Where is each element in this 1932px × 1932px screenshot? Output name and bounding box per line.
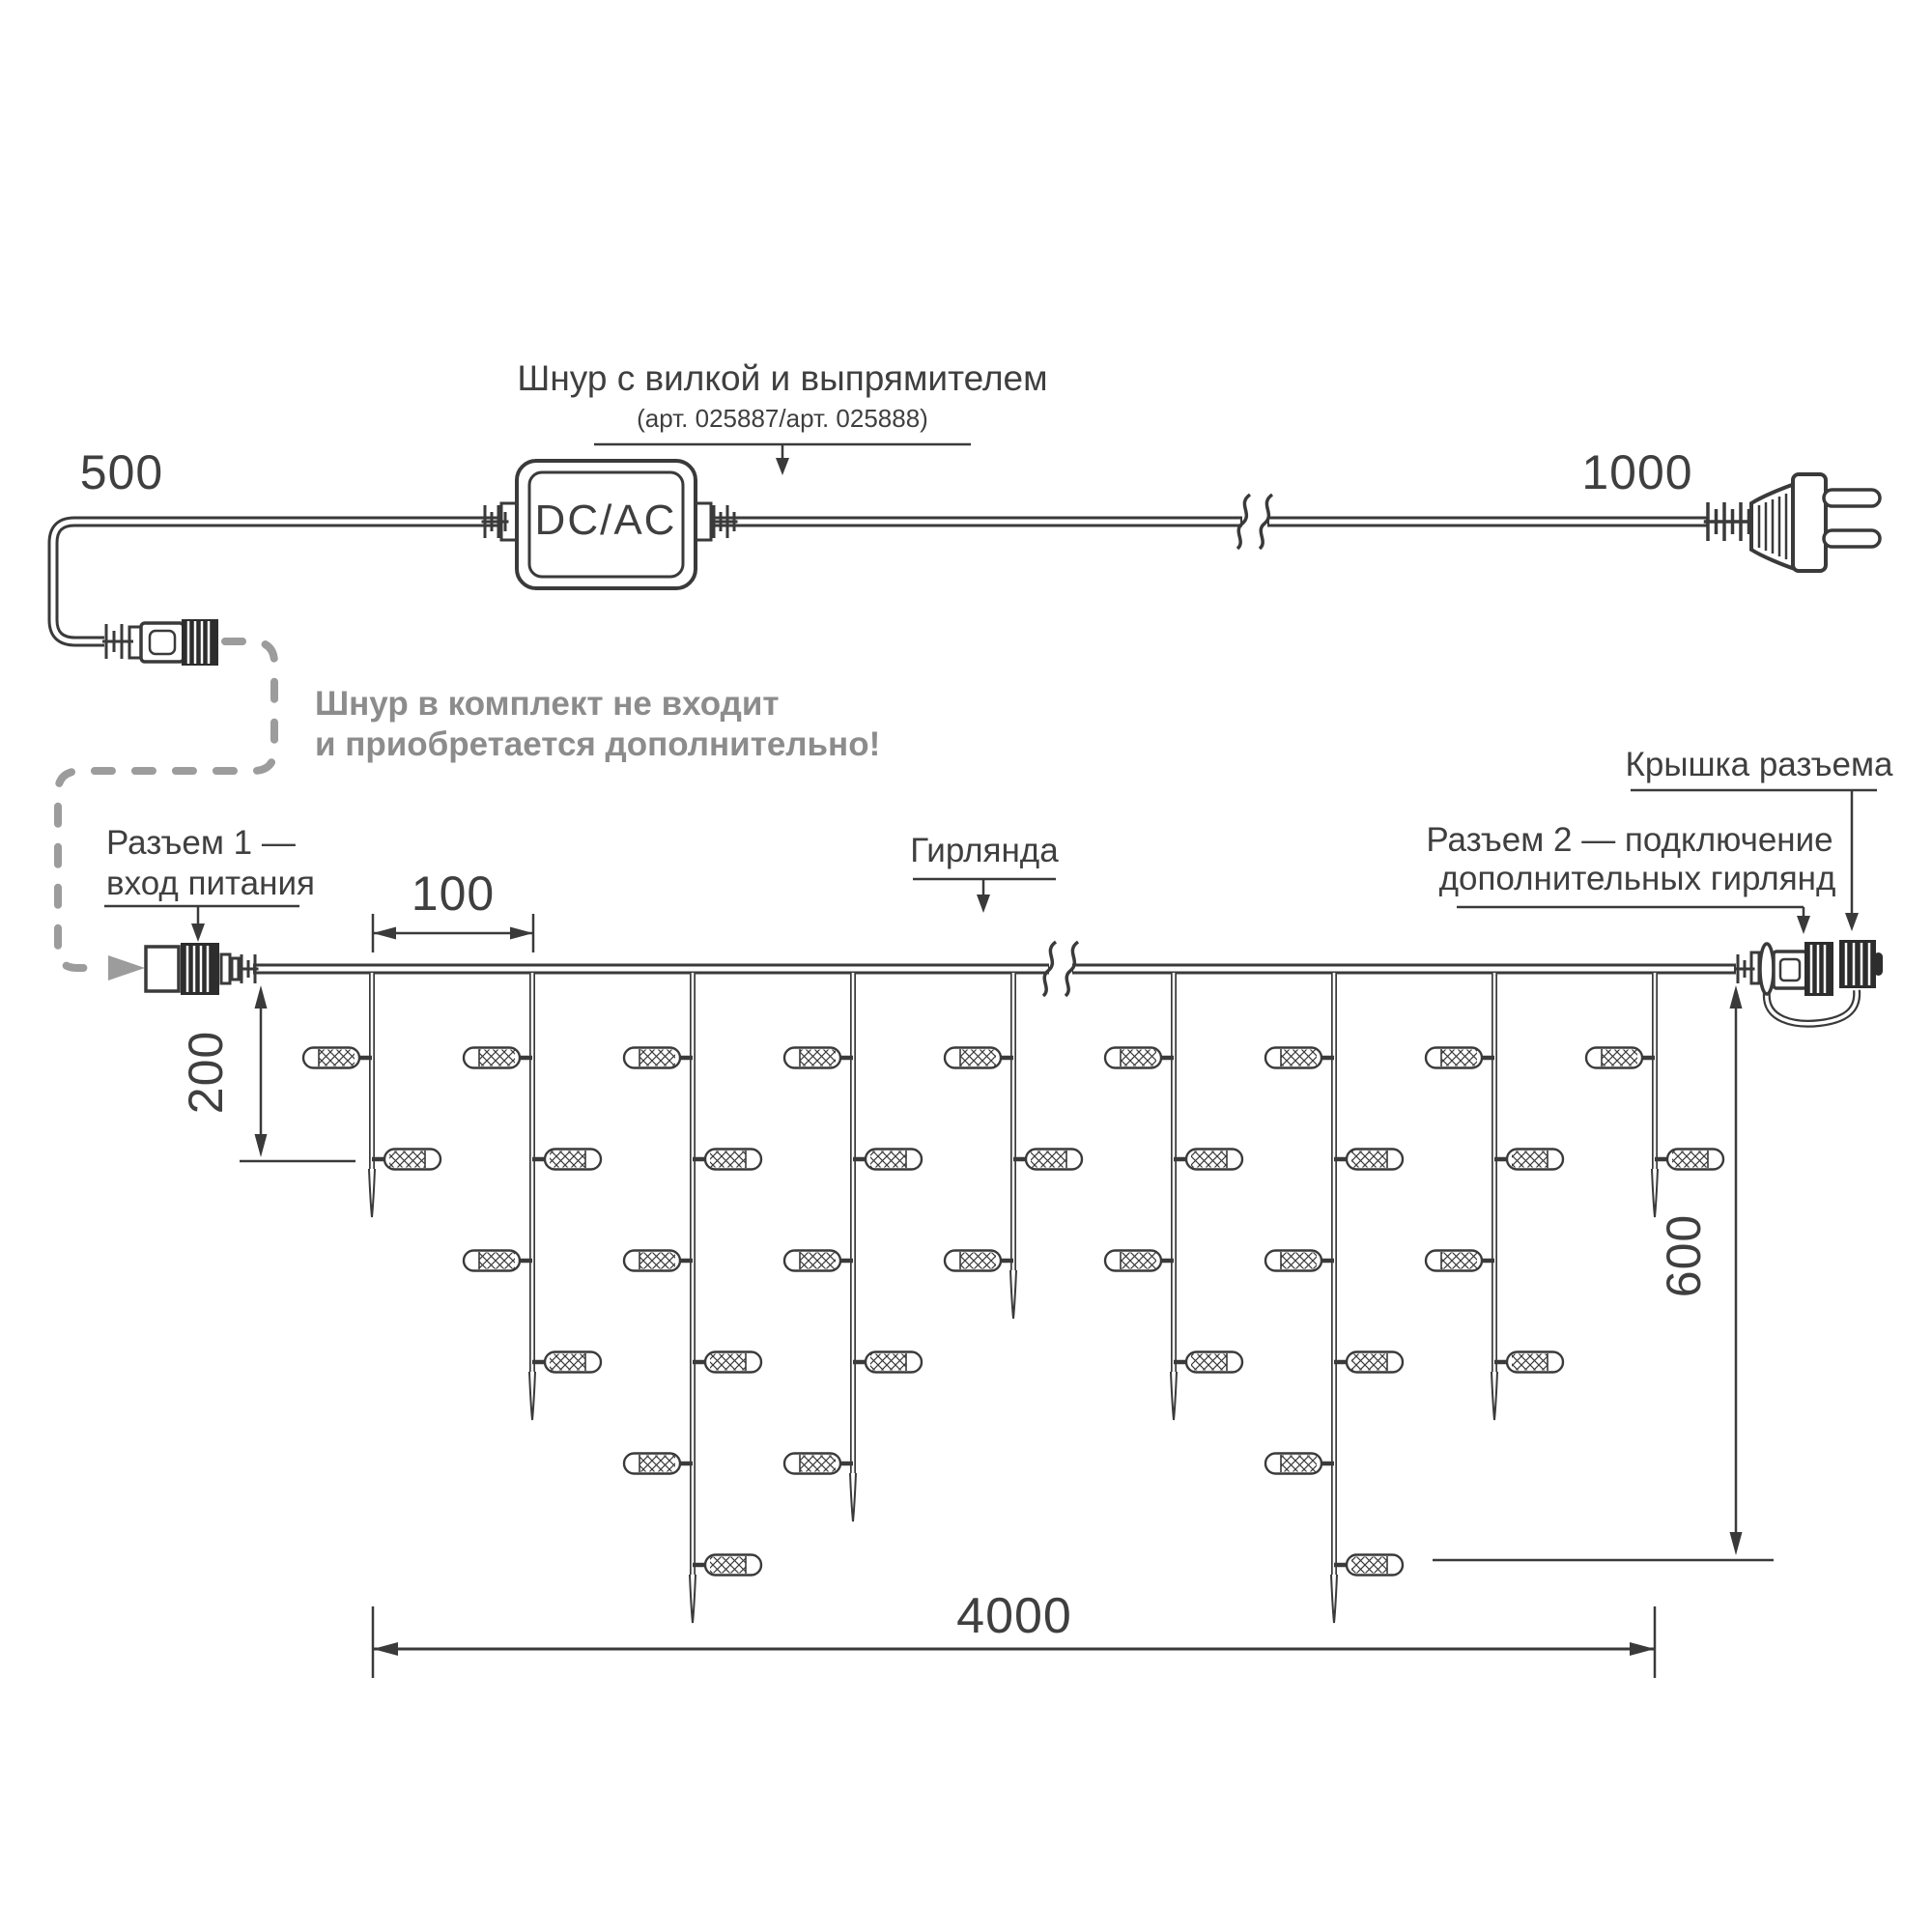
- led-bulb-hatch: [1281, 1050, 1317, 1066]
- drop-tip: [690, 1575, 696, 1623]
- led-bulb-hatch: [710, 1557, 746, 1574]
- led-bulb-hatch: [870, 1354, 906, 1371]
- led-bulb: [1347, 1555, 1403, 1576]
- cord-left-run: [53, 522, 503, 641]
- led-bulb-hatch: [319, 1050, 355, 1066]
- led-bulb: [784, 1048, 840, 1068]
- led-bulb-hatch: [1191, 1354, 1227, 1371]
- dim-4000-arrowhead-right: [1630, 1642, 1655, 1656]
- led-bulb-hatch: [800, 1253, 836, 1269]
- led-bulb-hatch: [1031, 1151, 1066, 1168]
- garland-connector-2: [1751, 940, 1883, 1024]
- led-bulb: [945, 1048, 1001, 1068]
- led-bulb-hatch: [1281, 1456, 1317, 1472]
- led-bulb: [624, 1251, 680, 1271]
- garland-connector2-strain-relief: [1735, 954, 1755, 983]
- cord-title-block: Шнур с вилкой и выпрямителем (арт. 02588…: [517, 358, 1047, 475]
- connector2-body: [1774, 952, 1806, 988]
- led-bulb-hatch: [1121, 1253, 1156, 1269]
- dim-200-label: 200: [179, 1031, 233, 1114]
- led-bulb: [784, 1454, 840, 1474]
- drop-tip: [1652, 1169, 1658, 1217]
- icicle-drop: [945, 973, 1082, 1319]
- icicle-drop: [784, 973, 922, 1521]
- power-plug: [1751, 474, 1880, 571]
- garland-label-block: Гирлянда: [910, 832, 1059, 913]
- led-bulb-hatch: [1441, 1253, 1477, 1269]
- led-bulb: [545, 1352, 601, 1373]
- led-bulb-hatch: [1441, 1050, 1477, 1066]
- led-bulb-hatch: [1351, 1151, 1387, 1168]
- connector1-label-line1: Разъем 1 —: [106, 824, 296, 862]
- connector-nut: [182, 619, 218, 666]
- led-bulb: [1026, 1150, 1082, 1170]
- drop-tip: [1492, 1372, 1497, 1420]
- led-bulb-hatch: [1602, 1050, 1637, 1066]
- connector1-collar-a: [221, 954, 230, 983]
- dim-200-arrowhead-top: [255, 985, 268, 1009]
- adapter-strain-relief-right: [711, 505, 738, 538]
- led-bulb: [1265, 1048, 1321, 1068]
- dashed-arrowhead: [108, 955, 145, 980]
- led-bulb: [1347, 1352, 1403, 1373]
- led-bulb: [1186, 1150, 1242, 1170]
- led-bulb: [1265, 1251, 1321, 1271]
- cap-label: Крышка разъема: [1625, 746, 1893, 783]
- led-bulb: [624, 1048, 680, 1068]
- led-bulb: [784, 1251, 840, 1271]
- dashed-line: [58, 641, 274, 968]
- led-bulb-hatch: [800, 1456, 836, 1472]
- led-bulb: [705, 1150, 761, 1170]
- connector2-seal-ring: [1760, 944, 1774, 994]
- icicle-drop: [1426, 973, 1563, 1420]
- icicle-drop: [1105, 973, 1242, 1420]
- icicle-drop: [1265, 973, 1403, 1623]
- adapter-label: DC/AC: [535, 497, 677, 544]
- garland-wire: [253, 942, 1736, 996]
- cord-title: Шнур с вилкой и выпрямителем: [517, 358, 1047, 398]
- cap-arrowhead: [1845, 913, 1859, 931]
- dim-600-arrowhead-bottom: [1730, 1532, 1743, 1555]
- led-bulb: [1265, 1454, 1321, 1474]
- dim-4000-label: 4000: [956, 1588, 1072, 1644]
- led-bulb-hatch: [1672, 1151, 1708, 1168]
- dim-1000-label: 1000: [1581, 445, 1692, 499]
- power-cord: [53, 495, 1708, 641]
- plug-strain-relief: [1704, 502, 1753, 541]
- cord-title-arrowhead: [776, 458, 789, 475]
- dim-600-arrowhead-top: [1730, 985, 1743, 1009]
- led-bulb-hatch: [639, 1456, 675, 1472]
- note-block: Шнур в комплект не входит и приобретаетс…: [315, 685, 880, 763]
- led-bulb-hatch: [389, 1151, 425, 1168]
- led-bulb: [866, 1352, 922, 1373]
- dimension-200: 200: [179, 985, 355, 1161]
- led-bulb: [464, 1048, 520, 1068]
- drop-tip: [1331, 1575, 1337, 1623]
- led-bulb-hatch: [960, 1050, 996, 1066]
- led-bulb-hatch: [1512, 1354, 1548, 1371]
- connector2-label-block: Разъем 2 — подключение дополнительных ги…: [1426, 821, 1835, 934]
- connector-body: [141, 623, 184, 662]
- led-bulb: [1507, 1150, 1563, 1170]
- dim-600-label: 600: [1657, 1214, 1711, 1297]
- connector2-label-line2: дополнительных гирлянд: [1439, 860, 1836, 897]
- led-bulb-hatch: [870, 1151, 906, 1168]
- led-bulb-hatch: [639, 1253, 675, 1269]
- dim-200-arrowhead-bottom: [255, 1134, 268, 1157]
- connector1-arrowhead: [191, 923, 205, 942]
- cord-subtitle: (арт. 025887/арт. 025888): [637, 404, 928, 433]
- led-bulb-hatch: [550, 1354, 585, 1371]
- led-bulb-hatch: [1351, 1557, 1387, 1574]
- drop-tip: [1010, 1270, 1016, 1319]
- led-bulb: [945, 1251, 1001, 1271]
- led-bulb: [1586, 1048, 1642, 1068]
- dashed-connection-path: [58, 641, 274, 980]
- led-bulb: [1347, 1150, 1403, 1170]
- led-bulb: [464, 1251, 520, 1271]
- drop-tip: [529, 1372, 535, 1420]
- icicle-drop: [1586, 973, 1723, 1217]
- garland-connector-1: [146, 943, 239, 995]
- drop-tip: [369, 1169, 375, 1217]
- dim-4000-arrowhead-left: [373, 1642, 398, 1656]
- connector-cap: [1839, 940, 1876, 988]
- led-bulb-hatch: [1191, 1151, 1227, 1168]
- garland-label: Гирлянда: [910, 832, 1059, 869]
- garland-wiring-diagram: Шнур с вилкой и выпрямителем (арт. 02588…: [0, 0, 1932, 1932]
- connector1-label-line2: вход питания: [106, 865, 315, 902]
- cord-end-connector: [129, 619, 218, 666]
- icicle-drop: [303, 973, 440, 1217]
- led-bulb: [1507, 1352, 1563, 1373]
- diagram-page: Шнур с вилкой и выпрямителем (арт. 02588…: [0, 0, 1932, 1932]
- icicle-drop: [624, 973, 761, 1623]
- led-bulb-hatch: [710, 1151, 746, 1168]
- led-bulb: [1426, 1251, 1482, 1271]
- led-bulb: [384, 1150, 440, 1170]
- dc-ac-adapter: DC/AC: [501, 461, 711, 588]
- led-bulb: [866, 1150, 922, 1170]
- led-bulb: [705, 1555, 761, 1576]
- led-bulb: [624, 1454, 680, 1474]
- led-bulb-hatch: [960, 1253, 996, 1269]
- led-bulb-hatch: [1512, 1151, 1548, 1168]
- led-bulb: [1667, 1150, 1723, 1170]
- led-bulb-hatch: [1281, 1253, 1317, 1269]
- cord-left-core: [53, 522, 503, 641]
- plug-face: [1793, 474, 1826, 571]
- connector1-tip: [146, 947, 179, 991]
- plug-prong-top: [1824, 490, 1880, 506]
- led-bulb-hatch: [479, 1050, 515, 1066]
- led-bulb-hatch: [800, 1050, 836, 1066]
- icicle-drop: [464, 973, 601, 1420]
- connector-cap-nub: [1874, 952, 1883, 976]
- note-line-2: и приобретается дополнительно!: [315, 725, 880, 763]
- dim-100-arrowhead-left: [373, 927, 396, 940]
- led-bulb-hatch: [710, 1354, 746, 1371]
- dimension-4000: 4000: [373, 1588, 1655, 1678]
- led-bulb-hatch: [639, 1050, 675, 1066]
- dimension-100: 100: [373, 867, 533, 952]
- dim-100-label: 100: [412, 867, 495, 921]
- garland-connector1-strain-relief: [239, 954, 259, 983]
- dim-500-label: 500: [80, 445, 163, 499]
- connector1-label-block: Разъем 1 — вход питания: [104, 824, 315, 942]
- plug-prong-bottom: [1824, 530, 1880, 547]
- led-bulb-hatch: [1121, 1050, 1156, 1066]
- garland-drops: [303, 973, 1723, 1623]
- garland-arrowhead: [977, 895, 990, 913]
- led-bulb-hatch: [550, 1151, 585, 1168]
- led-bulb-hatch: [479, 1253, 515, 1269]
- led-bulb: [1426, 1048, 1482, 1068]
- connector2-arrowhead: [1797, 916, 1810, 934]
- led-bulb: [1105, 1048, 1161, 1068]
- led-bulb: [1105, 1251, 1161, 1271]
- connector1-collar-b: [232, 958, 239, 980]
- led-bulb: [303, 1048, 359, 1068]
- led-bulb: [1186, 1352, 1242, 1373]
- led-bulb: [545, 1150, 601, 1170]
- dim-100-arrowhead-right: [510, 927, 533, 940]
- dimension-600: 600: [1433, 985, 1774, 1560]
- note-line-1: Шнур в комплект не входит: [315, 685, 780, 723]
- drop-tip: [1171, 1372, 1177, 1420]
- led-bulb-hatch: [1351, 1354, 1387, 1371]
- led-bulb: [705, 1352, 761, 1373]
- connector2-label-line1: Разъем 2 — подключение: [1426, 821, 1833, 859]
- drop-tip: [850, 1473, 856, 1521]
